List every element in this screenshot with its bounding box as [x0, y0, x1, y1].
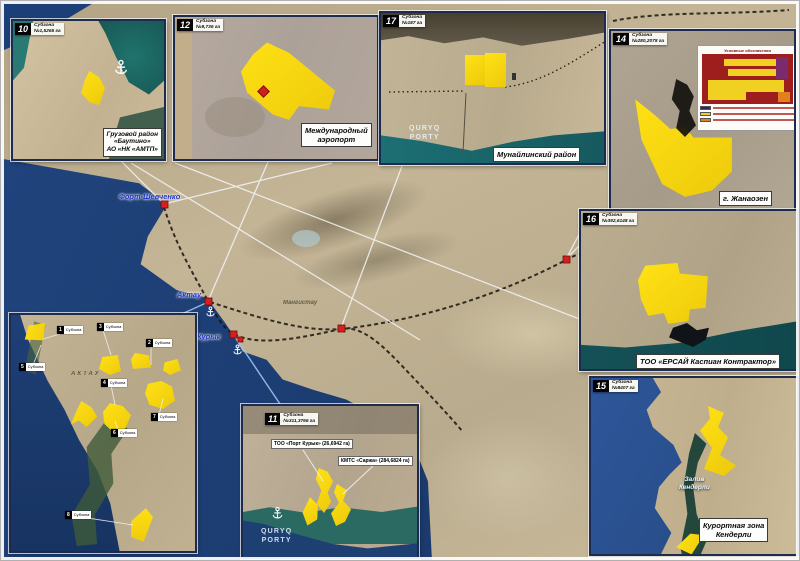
tag-number: 8 [65, 511, 72, 519]
inset-munayly-caption: Мунайлинский район [493, 147, 580, 162]
zone-polygon [465, 55, 485, 85]
map-canvas: Форт-Шевченко Актау Курык Мангистау 10 С… [0, 0, 800, 561]
inset-zhanaozen-header: 14 Субзона №280,2078 га [613, 33, 667, 45]
inset-number: 17 [383, 15, 399, 27]
road-north [613, 10, 789, 21]
terrain-strip [175, 17, 192, 161]
legend-row-text [713, 119, 795, 122]
region-label-mangistau: Мангистау [283, 300, 317, 306]
caption-line: Международный [305, 126, 368, 135]
city-label-fort-shevchenko: Форт-Шевченко [119, 192, 180, 201]
subzone-tag: 7Субзона [151, 413, 177, 421]
inset-number: 12 [177, 19, 193, 31]
marker-zhanaozen [563, 256, 570, 263]
zhanaozen-legend-box: Условные обозначения [697, 45, 796, 131]
marker-fort-shevchenko [161, 201, 168, 208]
label-port-kuryk: ТОО «Порт Курык» (26,6942 га) [271, 439, 353, 449]
bay-label-line: Кендерли [679, 484, 710, 492]
city-label-kuryk: Курык [197, 332, 220, 341]
marker-coast [338, 325, 345, 332]
port-text-line: PORTY [261, 537, 292, 546]
inset-ersai-header: 16 Субзона №392,6148 га [583, 213, 637, 225]
inset-kenderli-caption: Курортная зона Кендерли [699, 518, 768, 542]
subzone-tag: 6Субзона [111, 429, 137, 437]
inset-airport-header: 12 Субзона №9,736 га [177, 19, 223, 31]
tag-connectors [11, 315, 197, 553]
inset-ersai-caption: ТОО «ЕРСАЙ Каспиан Контрактор» [636, 354, 780, 369]
subzone-area: №8407 га [612, 386, 635, 392]
subzone-area: №280,2078 га [632, 39, 664, 45]
inset-number: 15 [593, 380, 609, 392]
bay-label: Залив Кендерли [679, 476, 710, 492]
caption-line: Грузовой район [107, 131, 159, 139]
tag-number: 1 [57, 326, 64, 334]
inset-number: 11 [265, 413, 280, 425]
subzone-tag: 1Субзона [57, 326, 83, 334]
legend-title: Условные обозначения [700, 48, 795, 53]
subzone-tag: 8Субзона [65, 511, 91, 519]
subzone-area: №1,5265 га [34, 29, 61, 35]
subzone-label: Субзона №9,736 га [193, 19, 223, 31]
inset-kuryk-port: ТОО «Порт Курык» (26,6942 га) КМТС «Сарж… [241, 404, 419, 559]
legend-row [700, 118, 795, 122]
subzone-tag: 2Субзона [146, 339, 172, 347]
tag-label: Субзона [108, 379, 128, 387]
port-caption-text: QURYQ PORTY [409, 125, 440, 142]
inset-zhanaozen-caption: г. Жанаозен [719, 191, 772, 206]
city-label-aktau-inset: АКТАУ [71, 371, 101, 377]
tag-number: 5 [19, 363, 26, 371]
tag-label: Субзона [26, 363, 46, 371]
inset-bautino: 10 Субзона №1,5265 га Грузовой район «Ба… [11, 19, 166, 161]
subzone-label: Субзона №311,3766 га [280, 413, 318, 425]
label-sarzha: КМТС «Саржа» (284,6824 га) [338, 456, 413, 466]
port-text-line: QURYQ [261, 528, 292, 537]
subzone-area: №392,6148 га [602, 219, 634, 225]
tag-label: Субзона [158, 413, 178, 421]
tag-label: Субзона [104, 323, 124, 331]
marker-aktau [205, 298, 212, 305]
legend-row-text [713, 113, 795, 116]
inset-number: 14 [613, 33, 629, 45]
terrain-patch [205, 97, 265, 137]
caption-line: аэропорт [305, 135, 368, 144]
anchor-icon [271, 506, 284, 527]
legend-row-text [713, 107, 795, 110]
inset-munayly-header: 17 Субзона №187 га [383, 15, 425, 27]
inset-kuryk-port-header: 11 Субзона №311,3766 га [265, 413, 318, 425]
subzone-label: Субзона №8407 га [609, 380, 638, 392]
tag-label: Субзона [153, 339, 173, 347]
port-text-line: PORTY [409, 134, 440, 143]
inset-airport-caption: Международный аэропорт [301, 123, 372, 147]
legend-swatch-yellow [700, 112, 711, 116]
plan-block [724, 59, 784, 66]
city-markers [161, 201, 570, 342]
legend-swatch-navy [700, 106, 711, 110]
tag-label: Субзона [64, 326, 84, 334]
tag-label: Субзона [72, 511, 92, 519]
tag-number: 6 [111, 429, 118, 437]
boundary-dotted-line [381, 13, 606, 165]
caption-line: Кендерли [703, 530, 764, 539]
inset-kenderli: Залив Кендерли 15 Субзона №8407 га Курор… [589, 376, 799, 556]
marker-kuryk-2 [238, 337, 243, 342]
inset-bautino-header: 10 Субзона №1,5265 га [15, 23, 64, 35]
subzone-area: №311,3766 га [283, 419, 315, 425]
legend-swatch-orange [700, 118, 711, 122]
anchor-icon [205, 306, 216, 324]
port-caption-text: QURYQ PORTY [261, 528, 292, 545]
subzone-label: Субзона №187 га [399, 15, 425, 27]
inset-number: 16 [583, 213, 599, 225]
plan-block-purple [776, 57, 788, 79]
inset-number: 10 [15, 23, 31, 35]
inset-aktau-zones: 1Субзона 3Субзона 2Субзона 5Субзона 4Суб… [9, 313, 197, 553]
zone-polygon [485, 53, 506, 87]
inset-ersai: 16 Субзона №392,6148 га ТОО «ЕРСАЙ Каспи… [579, 209, 799, 371]
tag-number: 7 [151, 413, 158, 421]
subzone-label: Субзона №392,6148 га [599, 213, 637, 225]
legend-diagram [700, 54, 795, 104]
tag-number: 4 [101, 379, 108, 387]
caption-line: Курортная зона [703, 521, 764, 530]
caption-line: «Баутино» [107, 138, 159, 146]
legend-row [700, 106, 795, 110]
legend-row [700, 112, 795, 116]
port-text-line: QURYQ [409, 125, 440, 134]
subzone-tag: 5Субзона [19, 363, 45, 371]
bay-label-line: Залив [679, 476, 710, 484]
subzone-area: №9,736 га [196, 25, 220, 31]
anchor-icon [232, 344, 243, 362]
subzone-tag: 4Субзона [101, 379, 127, 387]
inset-bautino-caption: Грузовой район «Баутино» АО «НК «АМТП» [103, 128, 163, 157]
inset-munayly: QURYQ PORTY 17 Субзона №187 га Мунайлинс… [379, 11, 606, 165]
tag-number: 2 [146, 339, 153, 347]
plan-block-orange [778, 92, 790, 102]
inset-kenderli-header: 15 Субзона №8407 га [593, 380, 638, 392]
subzone-label: Субзона №280,2078 га [629, 33, 667, 45]
tag-number: 3 [97, 323, 104, 331]
plan-block [732, 80, 784, 92]
subzone-label: Субзона №1,5265 га [31, 23, 64, 35]
city-label-aktau: Актау [177, 290, 201, 299]
subzone-area: №187 га [402, 21, 422, 27]
inset-zhanaozen: Условные обозначения 14 Субзона №280,207… [609, 29, 796, 213]
anchor-icon [113, 59, 129, 83]
marker-kuryk [230, 331, 237, 338]
inset-airport: 12 Субзона №9,736 га Международный аэроп… [173, 15, 379, 161]
tag-label: Субзона [118, 429, 138, 437]
caption-line: АО «НК «АМТП» [107, 146, 159, 154]
subzone-tag: 3Субзона [97, 323, 123, 331]
